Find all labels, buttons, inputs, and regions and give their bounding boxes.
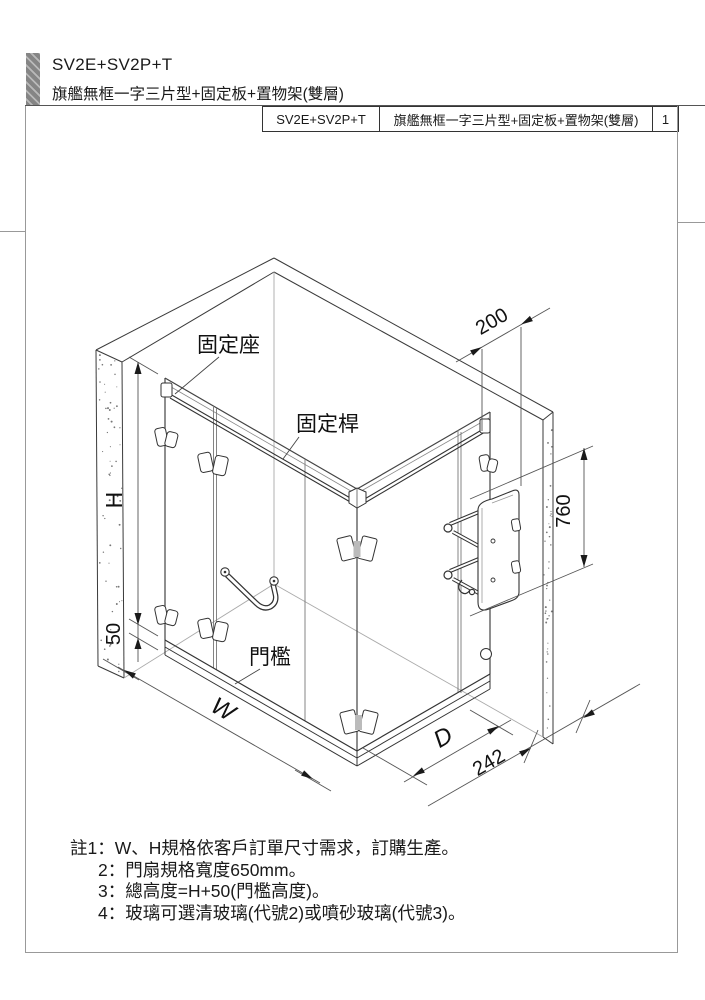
dim-wall-gap: 242 — [469, 745, 509, 781]
dim-width: W — [206, 692, 241, 728]
notes-block: 註1：W、H規格依客戶訂單尺寸需求，訂購生產。 2：門扇規格寬度650mm。 3… — [70, 838, 466, 924]
dim-height: H — [101, 492, 127, 509]
door-handle — [221, 568, 278, 608]
shelf-unit — [444, 490, 521, 610]
note-line-2: 2：門扇規格寬度650mm。 — [70, 860, 466, 882]
fixed-seat-bracket-left — [161, 383, 172, 397]
glass-edge-inner-lines — [166, 384, 489, 494]
note-line-1: 註1：W、H規格依客戶訂單尺寸需求，訂購生產。 — [70, 838, 466, 860]
spec-sheet-page: SV2E+SV2P+T 旗艦無框一字三片型+固定板+置物架(雙層) SV2E+S… — [0, 0, 705, 1000]
label-fixed-seat: 固定座 — [197, 334, 260, 357]
fixed-seat-bracket-right — [480, 419, 490, 433]
label-threshold: 門檻 — [249, 646, 291, 669]
note-line-3: 3：總高度=H+50(門檻高度)。 — [70, 881, 466, 903]
bar-corner-elbow — [349, 488, 366, 508]
shelf-mount-tab — [511, 560, 521, 573]
note-line-4: 4：玻璃可選清玻璃(代號2)或噴砂玻璃(代號3)。 — [70, 903, 466, 925]
dim-depth: D — [429, 721, 458, 753]
dim-shelf-offset: 200 — [472, 304, 512, 340]
dim-threshold-height: 50 — [103, 623, 125, 645]
fixed-bar — [170, 394, 485, 504]
glass-seams — [214, 406, 462, 721]
dim-shelf-height: 760 — [553, 494, 575, 527]
shelf-mount-tab — [511, 518, 521, 531]
glass-clamps — [154, 427, 498, 735]
label-fixed-bar: 固定桿 — [296, 413, 359, 436]
leader-lines — [175, 357, 299, 684]
shelf-backplate — [478, 490, 519, 610]
